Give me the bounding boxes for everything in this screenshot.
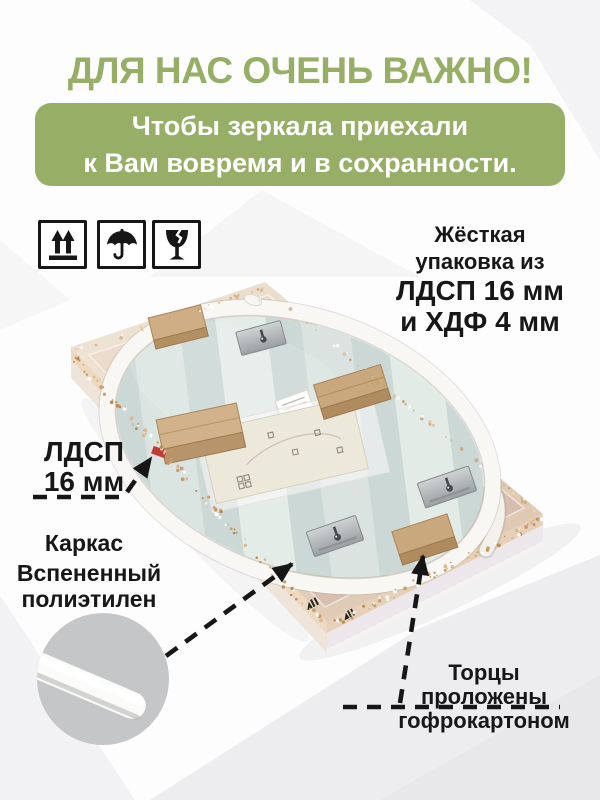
frame-callout-caption: Каркас	[8, 530, 160, 556]
edges-callout: Торцы проложены гофрокартоном	[392, 661, 576, 733]
edges-callout-line-3: гофрокартоном	[392, 709, 576, 733]
banner-line-2: к Вам вовремя и в сохранности.	[83, 145, 516, 182]
packaging-note: Жёсткая упаковка из ЛДСП 16 мм и ХДФ 4 м…	[375, 221, 585, 337]
this-side-up-icon	[38, 220, 87, 269]
edges-callout-line-1: Торцы	[392, 661, 576, 685]
subtitle-banner: Чтобы зеркала приехали к Вам вовремя и в…	[35, 103, 565, 186]
banner-line-1: Чтобы зеркала приехали	[132, 108, 468, 145]
packaging-note-line-4: и ХДФ 4 мм	[375, 306, 585, 337]
frame-callout-line-2: 16 мм	[8, 467, 160, 497]
packaging-note-line-2: упаковка из	[375, 248, 585, 275]
foam-callout: Вспененный полиэтилен	[8, 560, 170, 612]
packaging-infographic: ДЛЯ НАС ОЧЕНЬ ВАЖНО! Чтобы зеркала приех…	[0, 0, 600, 800]
frame-callout: ЛДСП 16 мм Каркас	[8, 437, 160, 556]
edges-callout-line-2: проложены	[392, 685, 576, 709]
packaging-note-line-1: Жёсткая	[375, 221, 585, 248]
foam-callout-line-2: полиэтилен	[8, 586, 170, 612]
foam-callout-line-1: Вспененный	[8, 560, 170, 586]
frame-callout-line-1: ЛДСП	[8, 437, 160, 467]
packaging-note-line-3: ЛДСП 16 мм	[375, 275, 585, 306]
fragile-icon	[152, 220, 201, 269]
keep-dry-icon	[97, 220, 146, 269]
page-title: ДЛЯ НАС ОЧЕНЬ ВАЖНО!	[0, 50, 600, 92]
